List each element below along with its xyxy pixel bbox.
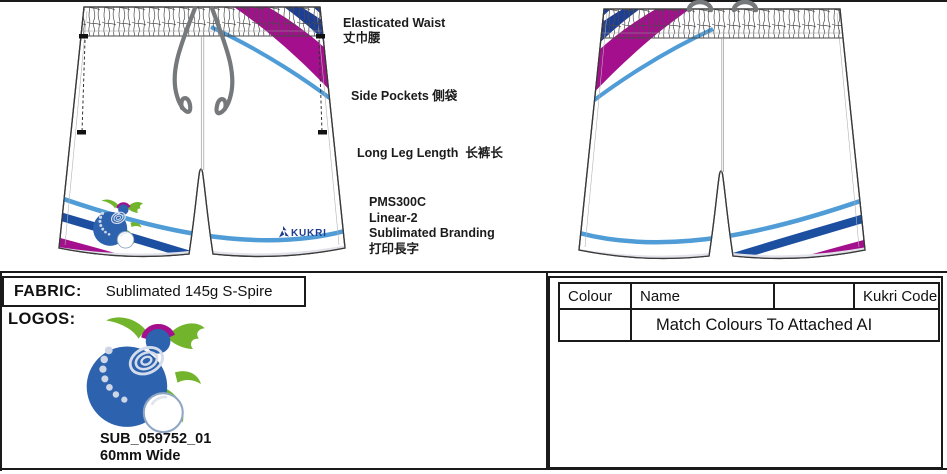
colour-table-header-name: Name <box>630 282 775 310</box>
shorts-front-drawing: KUKRI <box>56 2 348 270</box>
annotation-branding-line4: 打印長字 <box>369 242 495 258</box>
artwork-size: 60mm Wide <box>100 448 180 464</box>
spec-sheet: KUKRI <box>0 0 947 474</box>
artwork-code: SUB_059752_01 <box>100 431 211 447</box>
annotation-long-leg-length: Long Leg Length 长裤长 <box>357 146 503 162</box>
annotation-branding-line2: Linear-2 <box>369 211 495 227</box>
shorts-back-drawing <box>576 0 868 272</box>
fabric-label: FABRIC: <box>14 283 82 301</box>
section-divider <box>0 271 947 273</box>
annotation-elasticated-waist-en: Elasticated Waist <box>343 16 445 32</box>
logos-label: LOGOS: <box>8 310 75 329</box>
front-waistband <box>81 7 323 36</box>
colour-swatch-cell <box>558 308 632 342</box>
colour-table-header-colour: Colour <box>558 282 632 310</box>
back-waistband <box>601 9 843 38</box>
colour-table-header-kukri-code: Kukri Code <box>853 282 940 310</box>
annotation-branding-line1: PMS300C <box>369 195 495 211</box>
colour-table-header-blank <box>773 282 855 310</box>
kukri-wordmark: KUKRI <box>291 228 327 239</box>
fabric-value: Sublimated 145g S-Spire <box>106 283 273 300</box>
annotation-side-pockets: Side Pockets 側袋 <box>351 89 457 105</box>
annotation-elasticated-waist-zh: 丈巾腰 <box>343 31 381 47</box>
colour-table-note: Match Colours To Attached AI <box>630 308 940 342</box>
club-crest-large <box>84 314 214 436</box>
annotation-branding-line3: Sublimated Branding <box>369 226 495 242</box>
fabric-panel: FABRIC: Sublimated 145g S-Spire <box>2 276 306 307</box>
annotation-branding-block: PMS300C Linear-2 Sublimated Branding 打印長… <box>369 195 495 257</box>
